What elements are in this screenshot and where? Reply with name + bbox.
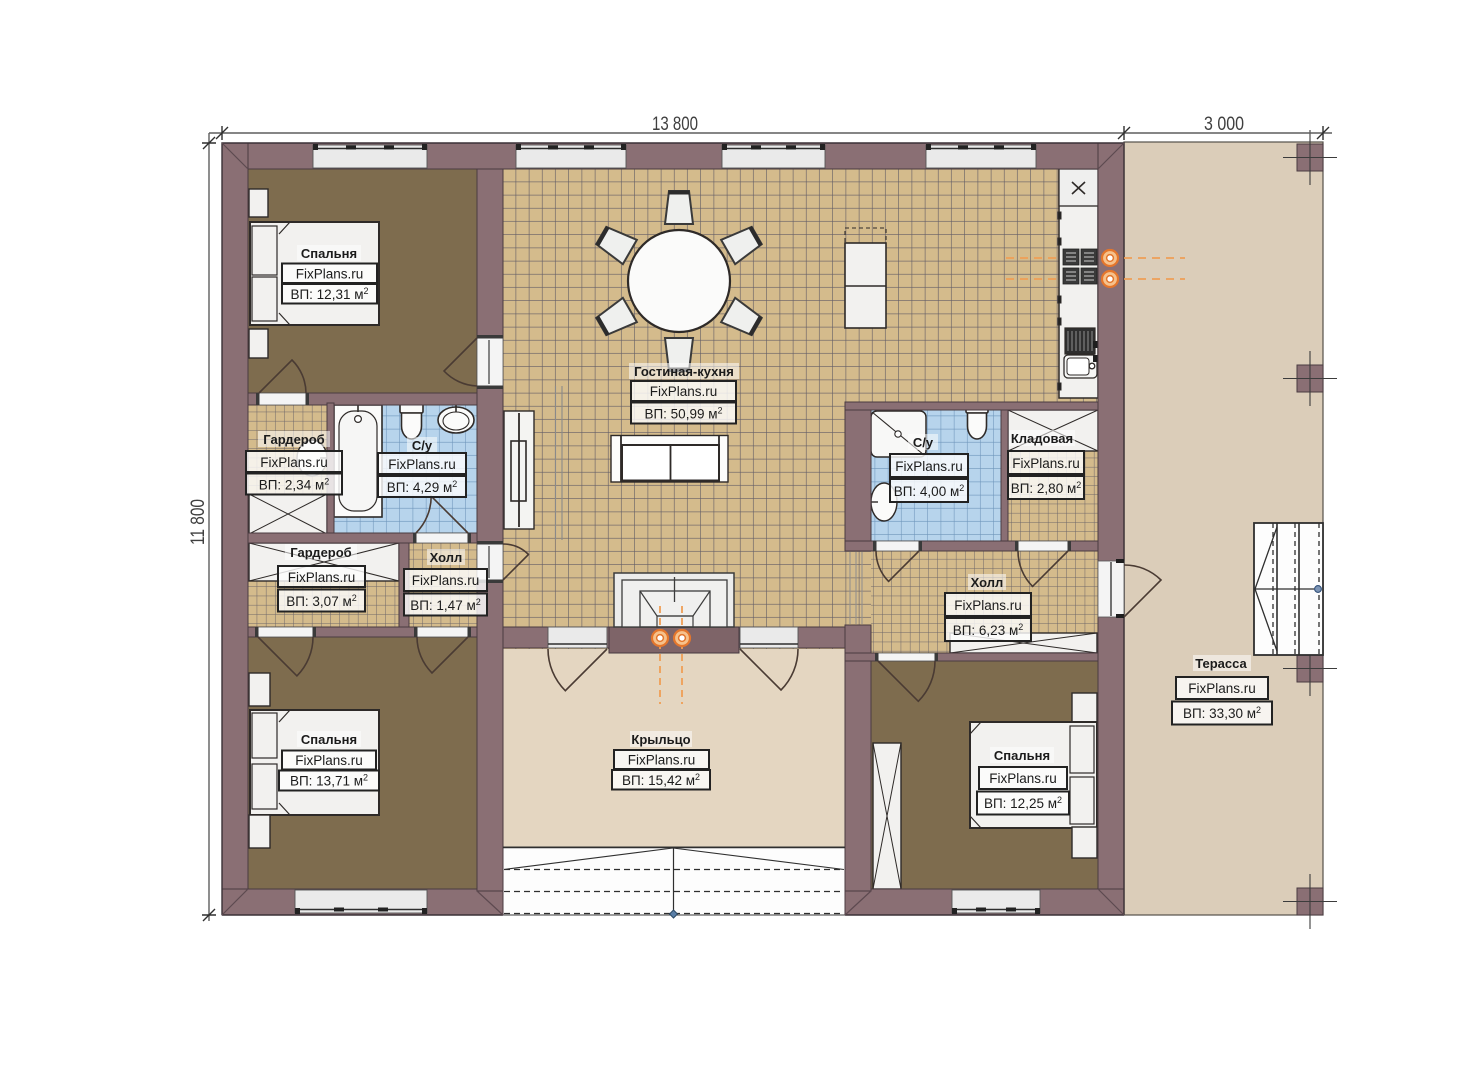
svg-text:3 000: 3 000 bbox=[1204, 114, 1244, 135]
svg-text:ВП: 15,42 м2: ВП: 15,42 м2 bbox=[622, 772, 700, 788]
svg-text:13 800: 13 800 bbox=[652, 114, 698, 135]
svg-text:С/у: С/у bbox=[412, 438, 433, 453]
svg-text:FixPlans.ru: FixPlans.ru bbox=[650, 384, 718, 399]
svg-text:ВП: 13,71 м2: ВП: 13,71 м2 bbox=[290, 773, 368, 789]
svg-text:ВП: 12,31 м2: ВП: 12,31 м2 bbox=[290, 286, 368, 302]
svg-text:ВП: 3,07 м2: ВП: 3,07 м2 bbox=[286, 593, 357, 609]
svg-text:ВП: 4,29 м2: ВП: 4,29 м2 bbox=[387, 479, 458, 495]
svg-text:FixPlans.ru: FixPlans.ru bbox=[296, 267, 364, 282]
svg-text:FixPlans.ru: FixPlans.ru bbox=[295, 753, 363, 768]
svg-text:ВП: 50,99 м2: ВП: 50,99 м2 bbox=[644, 406, 722, 422]
svg-text:FixPlans.ru: FixPlans.ru bbox=[1012, 456, 1080, 471]
svg-text:FixPlans.ru: FixPlans.ru bbox=[1188, 681, 1256, 696]
svg-text:ВП: 1,47 м2: ВП: 1,47 м2 bbox=[410, 597, 481, 613]
svg-text:Спальня: Спальня bbox=[994, 748, 1050, 763]
svg-text:ВП: 6,23 м2: ВП: 6,23 м2 bbox=[953, 622, 1024, 638]
svg-text:FixPlans.ru: FixPlans.ru bbox=[954, 598, 1022, 613]
svg-text:Терасса: Терасса bbox=[1195, 656, 1247, 671]
svg-text:FixPlans.ru: FixPlans.ru bbox=[412, 573, 480, 588]
svg-text:Гардероб: Гардероб bbox=[290, 545, 351, 560]
svg-text:Спальня: Спальня bbox=[301, 246, 357, 261]
svg-text:ВП: 2,80 м2: ВП: 2,80 м2 bbox=[1011, 480, 1082, 496]
svg-text:ВП: 33,30 м2: ВП: 33,30 м2 bbox=[1183, 705, 1261, 721]
svg-text:FixPlans.ru: FixPlans.ru bbox=[895, 459, 963, 474]
svg-text:Кладовая: Кладовая bbox=[1011, 431, 1073, 446]
svg-text:Гостиная-кухня: Гостиная-кухня bbox=[634, 364, 734, 379]
svg-text:FixPlans.ru: FixPlans.ru bbox=[989, 771, 1057, 786]
svg-text:Гардероб: Гардероб bbox=[263, 432, 324, 447]
svg-text:FixPlans.ru: FixPlans.ru bbox=[628, 753, 696, 768]
svg-text:Холл: Холл bbox=[971, 575, 1004, 590]
svg-text:Холл: Холл bbox=[430, 550, 463, 565]
svg-text:ВП: 2,34 м2: ВП: 2,34 м2 bbox=[259, 477, 330, 493]
svg-text:11 800: 11 800 bbox=[188, 499, 209, 545]
svg-text:FixPlans.ru: FixPlans.ru bbox=[288, 570, 356, 585]
svg-text:ВП: 4,00 м2: ВП: 4,00 м2 bbox=[894, 483, 965, 499]
svg-text:Спальня: Спальня bbox=[301, 732, 357, 747]
svg-text:ВП: 12,25 м2: ВП: 12,25 м2 bbox=[984, 795, 1062, 811]
svg-text:FixPlans.ru: FixPlans.ru bbox=[388, 457, 456, 472]
svg-text:Крыльцо: Крыльцо bbox=[631, 732, 690, 747]
svg-text:С/у: С/у bbox=[913, 435, 934, 450]
svg-text:FixPlans.ru: FixPlans.ru bbox=[260, 455, 328, 470]
